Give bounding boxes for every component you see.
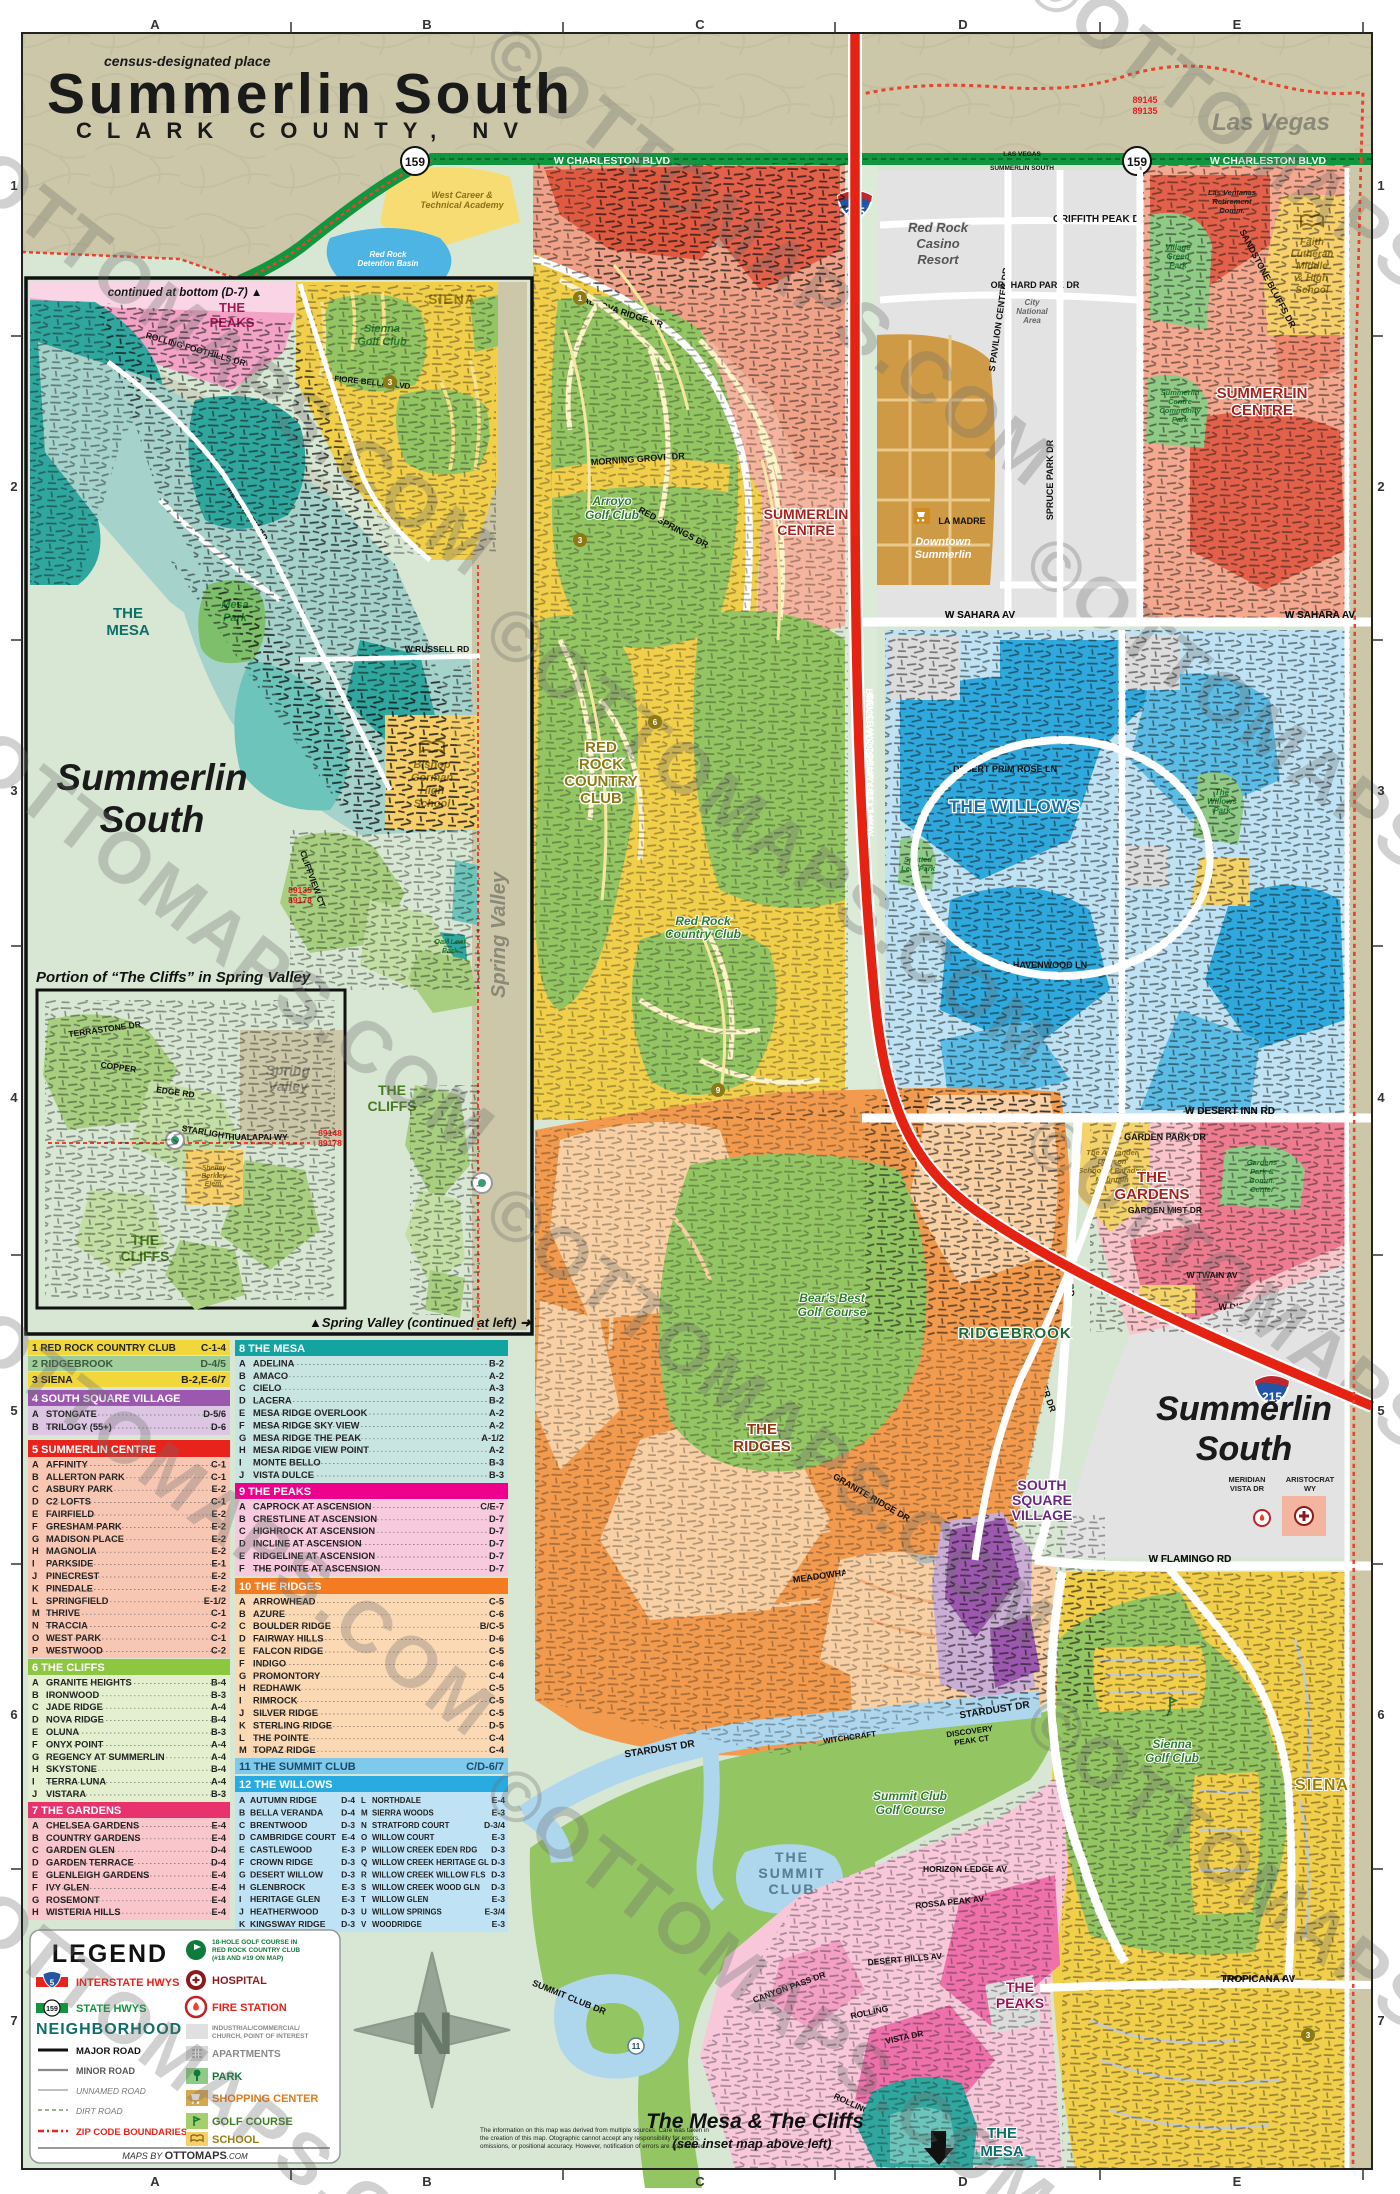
svg-text:the creation of this map. Otog: the creation of this map. Otographic can…: [480, 2135, 700, 2142]
svg-text:SUMMERLIN SOUTH: SUMMERLIN SOUTH: [990, 165, 1054, 172]
svg-text:1: 1: [10, 178, 17, 193]
svg-text:Golf Club: Golf Club: [1145, 1751, 1199, 1765]
svg-text:E: E: [32, 1727, 38, 1737]
svg-text:SUMMIT: SUMMIT: [758, 1865, 825, 1881]
svg-text:J: J: [239, 1708, 244, 1718]
svg-text:4: 4: [1377, 1090, 1385, 1105]
svg-text:KINGSWAY RIDGE: KINGSWAY RIDGE: [250, 1919, 326, 1929]
svg-text:ZIP CODE BOUNDARIES: ZIP CODE BOUNDARIES: [76, 2127, 187, 2138]
svg-text:F: F: [239, 1658, 245, 1668]
svg-text:B-2,E-6/7: B-2,E-6/7: [181, 1374, 226, 1386]
svg-text:West Career &: West Career &: [431, 190, 492, 200]
svg-text:PINECREST: PINECREST: [46, 1571, 100, 1581]
svg-text:HEATHERWOOD: HEATHERWOOD: [250, 1907, 318, 1917]
svg-text:7: 7: [10, 2013, 17, 2028]
svg-text:B-3: B-3: [211, 1727, 226, 1737]
svg-text:WESTWOOD: WESTWOOD: [46, 1645, 103, 1655]
svg-text:5: 5: [10, 1403, 17, 1418]
svg-text:CLUB: CLUB: [580, 790, 622, 807]
svg-text:Area: Area: [1022, 316, 1041, 325]
svg-text:THE: THE: [775, 1849, 809, 1865]
svg-text:C-5: C-5: [489, 1646, 504, 1656]
svg-text:COUNTRY GARDENS: COUNTRY GARDENS: [46, 1833, 141, 1843]
svg-text:A: A: [32, 1459, 39, 1469]
svg-text:D-6: D-6: [211, 1422, 226, 1432]
svg-text:WILLOW COURT: WILLOW COURT: [372, 1833, 435, 1842]
svg-text:C: C: [32, 1702, 39, 1712]
svg-text:159: 159: [405, 155, 425, 169]
svg-text:PARKSIDE: PARKSIDE: [46, 1559, 93, 1569]
svg-text:B: B: [422, 17, 431, 32]
svg-text:E: E: [1233, 17, 1242, 32]
svg-text:THE: THE: [1137, 1169, 1167, 1186]
svg-text:Sienna: Sienna: [1152, 1737, 1192, 1751]
svg-text:C/D-6/7: C/D-6/7: [466, 1761, 504, 1773]
svg-text:B: B: [422, 2174, 431, 2189]
svg-text:J: J: [239, 1907, 244, 1917]
svg-text:P: P: [361, 1846, 367, 1855]
svg-text:D: D: [958, 17, 967, 32]
svg-text:F: F: [32, 1882, 38, 1892]
svg-text:IRONWOOD: IRONWOOD: [46, 1690, 99, 1700]
svg-text:THE: THE: [1006, 1979, 1034, 1995]
svg-text:D-7: D-7: [489, 1563, 504, 1573]
svg-text:1: 1: [1377, 178, 1384, 193]
svg-text:E-4: E-4: [212, 1882, 227, 1892]
svg-text:GLENLEIGH GARDENS: GLENLEIGH GARDENS: [46, 1870, 149, 1880]
svg-text:SOUTH: SOUTH: [1018, 1477, 1067, 1493]
svg-text:D-7: D-7: [489, 1551, 504, 1561]
svg-text:D-6: D-6: [489, 1634, 504, 1644]
svg-text:SILVER RIDGE: SILVER RIDGE: [253, 1708, 318, 1718]
svg-text:WILLOW CREEK HERITAGE GL: WILLOW CREEK HERITAGE GL: [372, 1858, 489, 1867]
svg-text:D-3: D-3: [491, 1845, 505, 1855]
svg-text:D: D: [239, 1396, 246, 1406]
svg-text:E: E: [239, 1408, 245, 1418]
svg-text:G: G: [239, 1869, 246, 1879]
svg-text:Technical Academy: Technical Academy: [420, 200, 504, 210]
svg-text:THE POINTE: THE POINTE: [253, 1733, 309, 1743]
svg-text:WOODRIDGE: WOODRIDGE: [372, 1920, 422, 1929]
svg-text:Detention Basin: Detention Basin: [358, 259, 419, 268]
svg-text:1: 1: [578, 294, 583, 303]
svg-text:B-2: B-2: [489, 1358, 504, 1368]
svg-text:B-4: B-4: [211, 1715, 227, 1725]
svg-text:B-3: B-3: [211, 1789, 226, 1799]
svg-text:RIMROCK: RIMROCK: [253, 1696, 298, 1706]
svg-text:H: H: [239, 1882, 245, 1892]
svg-text:IVY GLEN: IVY GLEN: [46, 1882, 90, 1892]
svg-text:National: National: [1016, 307, 1048, 316]
svg-text:R: R: [361, 1870, 367, 1879]
svg-text:Red Rock: Red Rock: [908, 220, 969, 235]
svg-text:CROWN RIDGE: CROWN RIDGE: [250, 1857, 313, 1867]
svg-text:Country Club: Country Club: [665, 927, 741, 941]
svg-text:RED ROCK COUNTRY CLUB: RED ROCK COUNTRY CLUB: [212, 1947, 300, 1954]
svg-text:ROCK: ROCK: [579, 756, 623, 773]
svg-text:3: 3: [1306, 2031, 1311, 2040]
svg-text:I: I: [32, 1777, 35, 1787]
svg-text:7: 7: [1377, 2013, 1384, 2028]
svg-text:12 THE WILLOWS: 12 THE WILLOWS: [239, 1779, 333, 1791]
svg-text:THRIVE: THRIVE: [46, 1608, 80, 1618]
svg-text:E: E: [239, 1646, 245, 1656]
svg-text:WILLOW CREEK WILLOW FLS: WILLOW CREEK WILLOW FLS: [372, 1870, 485, 1879]
svg-text:INDIGO: INDIGO: [253, 1658, 286, 1668]
svg-text:D-7: D-7: [489, 1514, 504, 1524]
svg-text:ASBURY PARK: ASBURY PARK: [46, 1484, 113, 1494]
svg-text:E-4: E-4: [212, 1907, 227, 1917]
svg-text:D-5/6: D-5/6: [203, 1409, 226, 1419]
svg-text:MERIDIAN: MERIDIAN: [1228, 1475, 1265, 1484]
svg-text:WY: WY: [1304, 1484, 1316, 1493]
svg-text:LAS VEGAS: LAS VEGAS: [1003, 151, 1041, 158]
svg-text:U: U: [361, 1908, 367, 1917]
svg-text:A: A: [150, 17, 160, 32]
svg-text:B: B: [32, 1472, 39, 1482]
svg-text:WILLOW CREEK WOOD GLN: WILLOW CREEK WOOD GLN: [372, 1883, 480, 1892]
svg-text:F: F: [239, 1420, 245, 1430]
svg-text:STRATFORD COURT: STRATFORD COURT: [372, 1821, 450, 1830]
svg-text:MESA RIDGE SKY VIEW: MESA RIDGE SKY VIEW: [253, 1420, 360, 1430]
svg-text:The information on this map wa: The information on this map was derived …: [480, 2127, 709, 2134]
svg-text:DIRT ROAD: DIRT ROAD: [76, 2106, 123, 2116]
svg-text:WILLOW CREEK EDEN RDG: WILLOW CREEK EDEN RDG: [372, 1846, 477, 1855]
svg-text:W SAHARA AV: W SAHARA AV: [1285, 610, 1356, 621]
svg-text:C-4: C-4: [489, 1745, 505, 1755]
svg-text:C-1-4: C-1-4: [201, 1343, 226, 1354]
svg-text:SIENA: SIENA: [1295, 1777, 1349, 1794]
svg-text:AFFINITY: AFFINITY: [46, 1459, 89, 1469]
svg-text:W SAHARA AV: W SAHARA AV: [945, 610, 1016, 621]
svg-text:8 THE MESA: 8 THE MESA: [239, 1343, 305, 1355]
svg-text:TOPAZ RIDGE: TOPAZ RIDGE: [253, 1745, 316, 1755]
svg-text:MESA: MESA: [980, 2143, 1024, 2160]
svg-text:4: 4: [10, 1090, 18, 1105]
svg-text:A-4: A-4: [211, 1739, 227, 1749]
svg-text:M: M: [32, 1608, 40, 1618]
svg-text:A-4: A-4: [211, 1702, 227, 1712]
svg-text:E-3: E-3: [492, 1894, 506, 1904]
svg-text:JADE RIDGE: JADE RIDGE: [46, 1702, 103, 1712]
svg-text:TROPICANA AV: TROPICANA AV: [1221, 1974, 1296, 1985]
svg-text:SUMMERLIN: SUMMERLIN: [764, 506, 849, 522]
svg-text:E-4: E-4: [212, 1870, 227, 1880]
svg-text:6: 6: [653, 718, 658, 727]
svg-text:I: I: [239, 1696, 242, 1706]
svg-text:FAIRFIELD: FAIRFIELD: [46, 1509, 94, 1519]
svg-text:S: S: [361, 1883, 367, 1892]
svg-text:D-3: D-3: [341, 1857, 355, 1867]
svg-text:VISTARA: VISTARA: [46, 1789, 86, 1799]
svg-text:A-2: A-2: [489, 1371, 504, 1381]
svg-text:E: E: [32, 1509, 38, 1519]
svg-text:3: 3: [388, 378, 393, 387]
svg-text:D-3: D-3: [491, 1857, 505, 1867]
svg-text:GRANITE HEIGHTS: GRANITE HEIGHTS: [46, 1677, 132, 1687]
svg-text:9: 9: [716, 1086, 721, 1095]
svg-text:UNNAMED ROAD: UNNAMED ROAD: [76, 2086, 146, 2096]
svg-text:3: 3: [1377, 783, 1384, 798]
svg-text:NORTHDALE: NORTHDALE: [372, 1796, 421, 1805]
svg-text:A-2: A-2: [489, 1420, 504, 1430]
svg-text:C: C: [32, 1845, 39, 1855]
svg-text:C: C: [695, 2174, 705, 2189]
svg-text:MADISON PLACE: MADISON PLACE: [46, 1534, 124, 1544]
svg-text:WEST PARK: WEST PARK: [46, 1633, 101, 1643]
svg-text:GARDENS: GARDENS: [1114, 1186, 1189, 1203]
svg-text:D-3: D-3: [341, 1820, 355, 1830]
svg-text:ADELINA: ADELINA: [253, 1358, 295, 1368]
svg-text:REDHAWK: REDHAWK: [253, 1683, 301, 1693]
svg-text:H: H: [32, 1764, 39, 1774]
svg-text:O: O: [361, 1833, 367, 1842]
svg-text:H: H: [239, 1445, 246, 1455]
svg-text:H: H: [32, 1546, 39, 1556]
svg-text:C-1: C-1: [211, 1608, 226, 1618]
svg-text:V: V: [361, 1920, 367, 1929]
svg-text:B/C-5: B/C-5: [480, 1621, 504, 1631]
svg-text:RIDGEBROOK: RIDGEBROOK: [958, 1325, 1071, 1342]
svg-text:Q: Q: [361, 1858, 367, 1867]
svg-text:E-3/4: E-3/4: [484, 1907, 505, 1917]
svg-text:A-2: A-2: [489, 1408, 504, 1418]
svg-text:Casino: Casino: [916, 236, 959, 251]
svg-text:B: B: [239, 1371, 246, 1381]
svg-text:F: F: [32, 1739, 38, 1749]
svg-text:A: A: [239, 1358, 246, 1368]
svg-text:E-4: E-4: [212, 1820, 227, 1830]
svg-text:WILLOW GLEN: WILLOW GLEN: [372, 1895, 429, 1904]
svg-text:W FLAMINGO RD: W FLAMINGO RD: [1149, 1554, 1232, 1565]
svg-text:MESA RIDGE VIEW POINT: MESA RIDGE VIEW POINT: [253, 1445, 369, 1455]
svg-text:FIRE STATION: FIRE STATION: [212, 2002, 287, 2014]
svg-text:B-3: B-3: [211, 1690, 226, 1700]
svg-text:D-3: D-3: [341, 1907, 355, 1917]
svg-text:CENTRE: CENTRE: [1231, 402, 1293, 419]
svg-text:T: T: [361, 1895, 366, 1904]
svg-text:GARDEN GLEN: GARDEN GLEN: [46, 1845, 115, 1855]
svg-text:2: 2: [1377, 479, 1384, 494]
svg-text:WILLOW SPRINGS: WILLOW SPRINGS: [372, 1908, 442, 1917]
svg-text:TRACCIA: TRACCIA: [46, 1621, 88, 1631]
svg-text:GARDEN TERRACE: GARDEN TERRACE: [46, 1858, 134, 1868]
svg-text:RIDGES: RIDGES: [733, 1438, 791, 1455]
svg-text:F: F: [32, 1521, 38, 1531]
svg-text:K: K: [239, 1919, 246, 1929]
svg-text:C-2: C-2: [211, 1645, 226, 1655]
svg-text:BRUCE WOODBURY BELT WAY: BRUCE WOODBURY BELT WAY: [864, 693, 875, 837]
svg-text:F: F: [239, 1857, 244, 1867]
svg-text:7 THE GARDENS: 7 THE GARDENS: [32, 1805, 121, 1817]
svg-text:A-4: A-4: [211, 1777, 227, 1787]
svg-text:E: E: [1233, 2174, 1242, 2189]
svg-text:D-4: D-4: [211, 1845, 227, 1855]
svg-text:THE WILLOWS: THE WILLOWS: [949, 797, 1081, 816]
svg-text:omissions, or positional accur: omissions, or positional accuracy. Howev…: [480, 2143, 706, 2150]
svg-text:D-7: D-7: [489, 1539, 504, 1549]
svg-text:G: G: [32, 1534, 39, 1544]
svg-text:(#18 AND #19 ON MAP): (#18 AND #19 ON MAP): [212, 1955, 283, 1962]
svg-text:D-3: D-3: [491, 1882, 505, 1892]
svg-text:CLUB: CLUB: [769, 1881, 816, 1897]
svg-text:VISTA DR: VISTA DR: [1230, 1484, 1265, 1493]
svg-text:Golf Course: Golf Course: [798, 1305, 867, 1319]
svg-text:Bear's Best: Bear's Best: [799, 1291, 866, 1305]
svg-text:E: E: [239, 1845, 245, 1855]
svg-text:K: K: [239, 1720, 246, 1730]
svg-text:Summit Club: Summit Club: [873, 1789, 947, 1803]
svg-text:PEAKS: PEAKS: [996, 1995, 1044, 2011]
svg-text:I: I: [239, 1458, 242, 1468]
svg-text:A-3: A-3: [489, 1383, 504, 1393]
svg-text:COUNTRY: COUNTRY: [564, 773, 638, 790]
svg-text:CHELSEA GARDENS: CHELSEA GARDENS: [46, 1820, 139, 1830]
svg-text:OLUNA: OLUNA: [46, 1727, 79, 1737]
svg-text:D-3: D-3: [341, 1919, 355, 1929]
svg-text:M: M: [361, 1808, 368, 1817]
svg-text:A: A: [32, 1820, 39, 1830]
svg-text:VILLAGE: VILLAGE: [1012, 1507, 1073, 1523]
svg-text:J: J: [32, 1789, 37, 1799]
svg-text:B: B: [32, 1690, 39, 1700]
svg-text:Summerlin: Summerlin: [1156, 1390, 1332, 1428]
svg-text:ROSEMONT: ROSEMONT: [46, 1895, 100, 1905]
svg-text:City: City: [1024, 298, 1040, 307]
svg-text:CHURCH, POINT OF INTEREST: CHURCH, POINT OF INTEREST: [212, 2033, 308, 2040]
svg-text:C-1: C-1: [211, 1633, 226, 1643]
svg-text:3: 3: [578, 536, 583, 545]
svg-text:MESA RIDGE THE PEAK: MESA RIDGE THE PEAK: [253, 1433, 361, 1443]
svg-text:6: 6: [1377, 1707, 1384, 1722]
svg-text:STERLING RIDGE: STERLING RIDGE: [253, 1720, 332, 1730]
svg-text:D: D: [239, 1832, 245, 1842]
svg-text:A-1/2: A-1/2: [481, 1433, 504, 1443]
svg-text:E-2: E-2: [212, 1583, 226, 1593]
svg-text:D-4/5: D-4/5: [200, 1358, 226, 1370]
svg-text:CAMBRIDGE COURT: CAMBRIDGE COURT: [250, 1832, 337, 1842]
svg-text:E-3: E-3: [342, 1894, 356, 1904]
svg-text:I: I: [32, 1559, 35, 1569]
svg-text:6 THE CLIFFS: 6 THE CLIFFS: [32, 1662, 105, 1674]
svg-text:MONTE BELLO: MONTE BELLO: [253, 1458, 321, 1468]
svg-text:C: C: [239, 1820, 245, 1830]
svg-text:MAGNOLIA: MAGNOLIA: [46, 1546, 97, 1556]
svg-text:L: L: [239, 1733, 245, 1743]
svg-text:E-3: E-3: [492, 1919, 506, 1929]
svg-text:GRIFFITH PEAK DR: GRIFFITH PEAK DR: [1053, 214, 1148, 225]
svg-text:N: N: [361, 1821, 367, 1830]
svg-text:GLENBROCK: GLENBROCK: [250, 1882, 306, 1892]
svg-text:SPRINGFIELD: SPRINGFIELD: [46, 1596, 109, 1606]
svg-text:D-7: D-7: [489, 1526, 504, 1536]
svg-text:11 THE SUMMIT CLUB: 11 THE SUMMIT CLUB: [239, 1761, 356, 1773]
svg-text:P: P: [32, 1645, 38, 1655]
svg-text:E-3: E-3: [342, 1882, 356, 1892]
svg-text:BRENTWOOD: BRENTWOOD: [250, 1820, 307, 1830]
svg-text:A: A: [32, 1677, 39, 1687]
svg-text:W DESERT INN RD: W DESERT INN RD: [1185, 1106, 1275, 1117]
svg-text:NOVA RIDGE: NOVA RIDGE: [46, 1715, 104, 1725]
svg-text:THE: THE: [113, 605, 143, 622]
svg-text:B-4: B-4: [211, 1677, 227, 1687]
svg-text:INDUSTRIAL/COMMERCIAL/: INDUSTRIAL/COMMERCIAL/: [212, 2025, 300, 2032]
svg-text:G: G: [239, 1671, 246, 1681]
svg-text:C-4: C-4: [489, 1733, 505, 1743]
svg-text:I: I: [239, 1894, 241, 1904]
svg-text:L: L: [361, 1796, 366, 1805]
svg-text:DESERT WILLOW: DESERT WILLOW: [250, 1869, 324, 1879]
svg-text:E-4: E-4: [342, 1832, 356, 1842]
svg-text:5: 5: [1377, 1403, 1384, 1418]
svg-text:PINEDALE: PINEDALE: [46, 1583, 93, 1593]
svg-text:Golf Course: Golf Course: [876, 1803, 945, 1817]
svg-text:C: C: [32, 1484, 39, 1494]
svg-text:CIELO: CIELO: [253, 1383, 281, 1393]
svg-text:11: 11: [632, 2042, 641, 2051]
svg-text:D: D: [32, 1497, 39, 1507]
svg-text:G: G: [32, 1752, 39, 1762]
svg-text:D-4: D-4: [341, 1795, 355, 1805]
svg-text:ONYX POINT: ONYX POINT: [46, 1739, 104, 1749]
svg-text:A: A: [150, 2174, 160, 2189]
svg-text:D: D: [239, 1634, 246, 1644]
svg-text:THE: THE: [747, 1421, 777, 1438]
svg-text:THE: THE: [987, 2125, 1017, 2142]
svg-text:HERITAGE GLEN: HERITAGE GLEN: [250, 1894, 320, 1904]
svg-text:D-5: D-5: [489, 1720, 504, 1730]
svg-text:E-4: E-4: [212, 1833, 227, 1843]
svg-text:AUTUMN RIDGE: AUTUMN RIDGE: [250, 1795, 317, 1805]
svg-text:BELLA VERANDA: BELLA VERANDA: [250, 1807, 323, 1817]
svg-text:B: B: [32, 1833, 39, 1843]
svg-text:N: N: [410, 2000, 453, 2067]
svg-text:B: B: [239, 1609, 246, 1619]
svg-text:B-2: B-2: [489, 1396, 504, 1406]
svg-text:South: South: [1196, 1430, 1292, 1468]
svg-text:SIERRA WOODS: SIERRA WOODS: [372, 1808, 434, 1817]
svg-text:RED: RED: [585, 739, 617, 756]
svg-text:C-6: C-6: [489, 1609, 504, 1619]
svg-text:O: O: [32, 1633, 39, 1643]
svg-text:SQUARE: SQUARE: [1012, 1492, 1072, 1508]
svg-text:TERRA LUNA: TERRA LUNA: [46, 1777, 106, 1787]
svg-text:CENTRE: CENTRE: [777, 522, 835, 538]
svg-text:E: E: [32, 1870, 38, 1880]
svg-text:Red Rock: Red Rock: [370, 250, 407, 259]
svg-text:D-4: D-4: [341, 1807, 355, 1817]
svg-text:G: G: [239, 1433, 246, 1443]
svg-text:D: D: [32, 1715, 39, 1725]
svg-text:B: B: [32, 1422, 39, 1432]
svg-text:HOSPITAL: HOSPITAL: [212, 1975, 267, 1987]
svg-text:C: C: [239, 1383, 246, 1393]
svg-text:6: 6: [10, 1707, 17, 1722]
svg-text:MESA RIDGE OVERLOOK: MESA RIDGE OVERLOOK: [253, 1408, 368, 1418]
svg-text:C-2: C-2: [211, 1621, 226, 1631]
svg-text:C: C: [695, 17, 705, 32]
svg-text:K: K: [32, 1583, 39, 1593]
svg-text:AMACO: AMACO: [253, 1371, 288, 1381]
svg-text:B-3: B-3: [489, 1458, 504, 1468]
svg-text:D: D: [958, 2174, 967, 2189]
svg-text:D-4: D-4: [211, 1858, 227, 1868]
svg-text:ARISTOCRAT: ARISTOCRAT: [1286, 1475, 1335, 1484]
svg-text:D-3: D-3: [341, 1869, 355, 1879]
svg-text:D: D: [32, 1858, 39, 1868]
svg-text:Golf Club: Golf Club: [585, 508, 639, 522]
svg-text:MESA: MESA: [106, 622, 150, 639]
